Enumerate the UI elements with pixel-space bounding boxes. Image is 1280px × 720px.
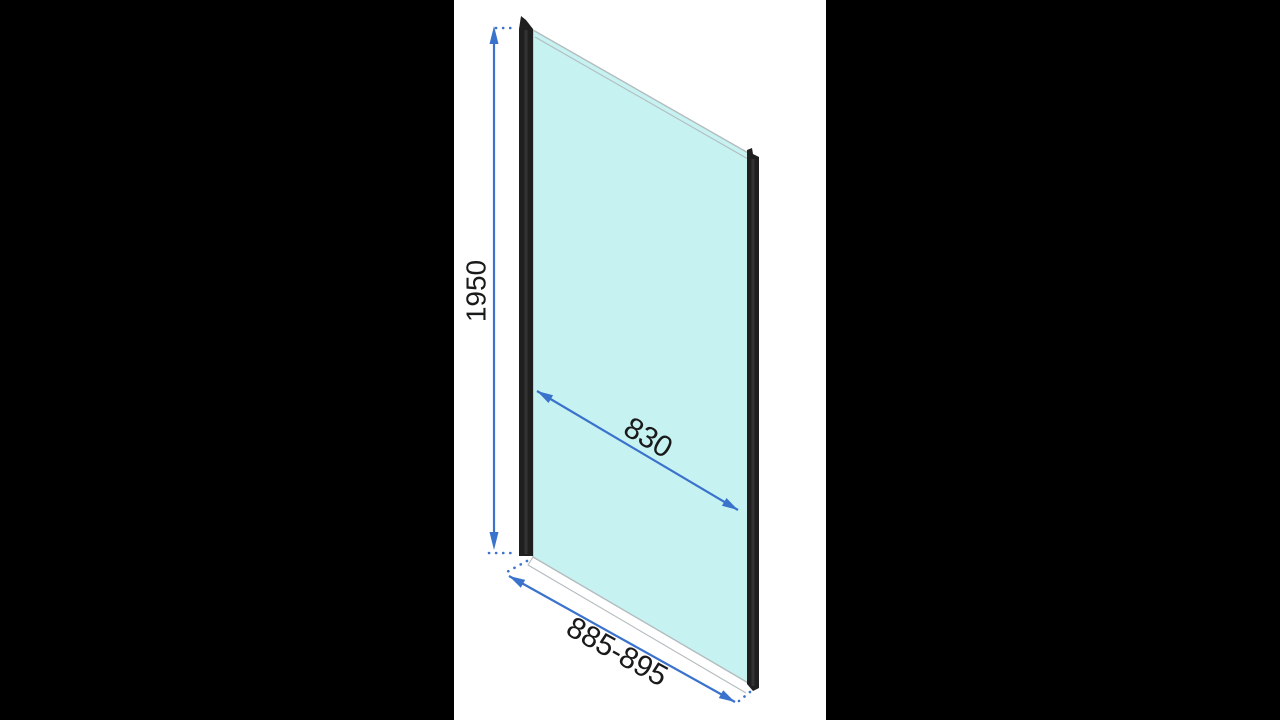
glass-pane [533,30,750,684]
product-dimension-diagram: 1950 830 885-895 [0,0,1280,720]
height-dimension-arrow-down [490,532,499,550]
overall-width-extension-dots-left [505,561,527,573]
height-dimension-label: 1950 [461,260,492,322]
left-black-bar [0,0,454,720]
shower-glass-panel-drawing: 1950 830 885-895 [0,0,1280,720]
right-black-bar [826,0,1280,720]
overall-width-arrow-left [509,576,525,588]
overall-width-extension-dots-right [739,692,750,701]
overall-width-arrow-right [719,690,735,702]
